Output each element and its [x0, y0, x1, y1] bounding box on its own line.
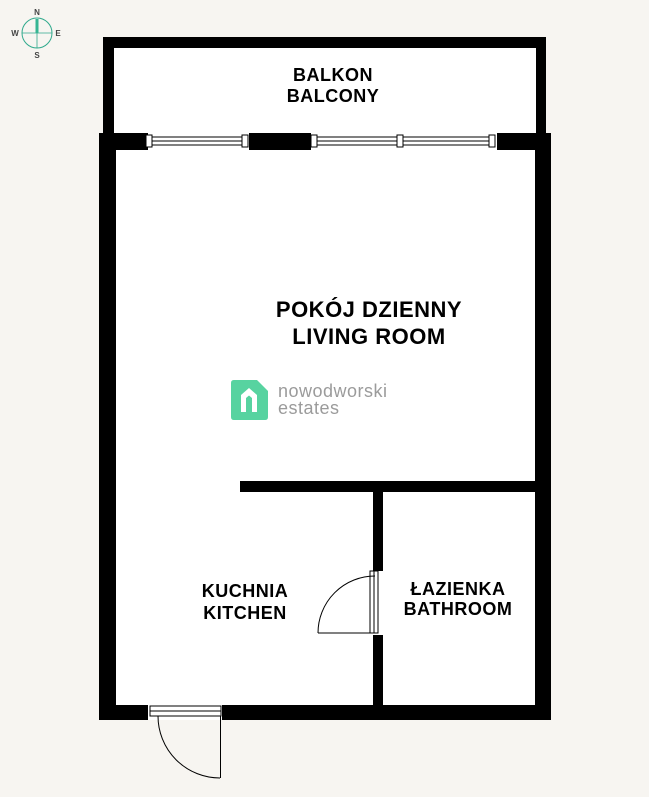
balcony-windows: [146, 135, 495, 147]
balcony-label-en: BALCONY: [287, 86, 380, 107]
agency-logo-text: nowodworski estates: [278, 383, 388, 417]
balcony-label: BALKON BALCONY: [287, 65, 380, 107]
wall-balcony-left: [103, 48, 114, 133]
balcony-label-pl: BALKON: [287, 65, 380, 86]
entry-door-swing-arc: [158, 716, 220, 778]
kitchen-label-pl: KUCHNIA: [202, 580, 289, 602]
bathroom-label-en: BATHROOM: [404, 599, 513, 619]
living-room-label-pl: POKÓJ DZIENNY: [276, 296, 462, 323]
wall-balcony-right: [536, 48, 546, 133]
agency-logo-mark-icon: [231, 380, 268, 420]
window-frame-cap: [397, 135, 403, 147]
apartment-floor: [99, 133, 551, 720]
living-room-label-en: LIVING ROOM: [276, 323, 462, 350]
wall-balcony-top: [103, 37, 546, 48]
window-frame-cap: [242, 135, 248, 147]
wall-bathroom-upper: [373, 492, 383, 571]
bathroom-label: ŁAZIENKA BATHROOM: [404, 579, 513, 619]
compass-w-label: W: [11, 29, 19, 38]
wall-window-segment-right: [497, 133, 551, 150]
kitchen-label: KUCHNIA KITCHEN: [202, 580, 289, 624]
floor-plan: N E S W: [0, 0, 649, 797]
wall-window-segment-left: [99, 133, 148, 150]
bathroom-label-pl: ŁAZIENKA: [404, 579, 513, 599]
wall-bathroom-lower: [373, 635, 383, 705]
logo-text-line2: estates: [278, 400, 388, 417]
kitchen-label-en: KITCHEN: [202, 602, 289, 624]
wall-interior-horizontal: [240, 481, 551, 492]
window-frame-cap: [311, 135, 317, 147]
living-room-label: POKÓJ DZIENNY LIVING ROOM: [276, 296, 462, 350]
window-frame-cap: [489, 135, 495, 147]
compass: N E S W: [11, 8, 61, 60]
logo-mark-background: [231, 380, 268, 420]
wall-window-segment-middle: [249, 133, 311, 150]
wall-bottom-left-of-door: [99, 705, 148, 720]
compass-s-label: S: [34, 51, 40, 60]
window-frame-cap: [146, 135, 152, 147]
compass-n-label: N: [34, 8, 40, 17]
wall-left: [99, 133, 116, 720]
compass-e-label: E: [55, 29, 61, 38]
wall-bottom-right-of-door: [222, 705, 551, 720]
wall-right: [535, 133, 551, 720]
agency-logo: nowodworski estates: [231, 380, 388, 420]
